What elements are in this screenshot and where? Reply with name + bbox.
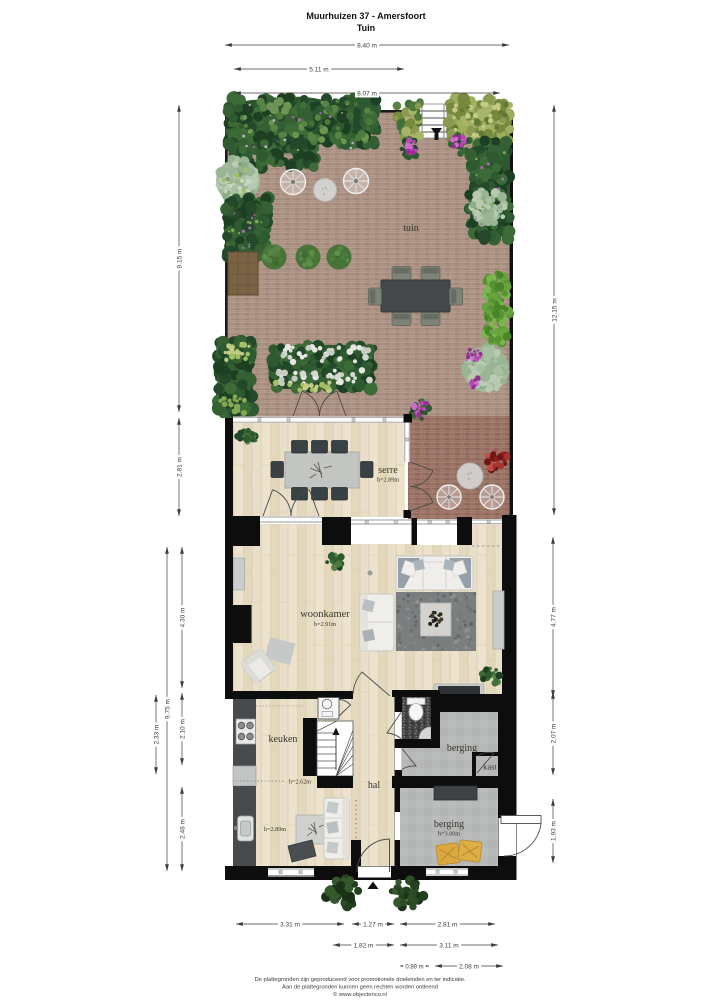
svg-text:9.75 m: 9.75 m xyxy=(165,699,172,719)
svg-text:4.77 m: 4.77 m xyxy=(551,607,558,627)
svg-text:9.15 m: 9.15 m xyxy=(177,249,184,269)
svg-text:8.40 m: 8.40 m xyxy=(357,43,377,50)
svg-text:3.11 m: 3.11 m xyxy=(439,943,458,950)
svg-text:tuin: tuin xyxy=(403,223,419,234)
svg-text:Muurhuizen 37 - Amersfoort: Muurhuizen 37 - Amersfoort xyxy=(306,11,425,21)
svg-text:De plattegronden zijn geproduc: De plattegronden zijn geproduceerd voor … xyxy=(254,977,465,983)
svg-text:12.15 m: 12.15 m xyxy=(552,298,559,322)
svg-text:Aan de plattegronden kunnen ge: Aan de plattegronden kunnen geen rechten… xyxy=(282,985,438,991)
svg-text:2.81 m: 2.81 m xyxy=(177,457,184,477)
svg-text:h=2.89m: h=2.89m xyxy=(377,477,399,484)
svg-text:0.89 m: 0.89 m xyxy=(405,965,423,971)
svg-text:1.93 m: 1.93 m xyxy=(551,821,558,841)
svg-text:keuken: keuken xyxy=(269,734,298,745)
svg-text:2.81 m: 2.81 m xyxy=(438,922,458,929)
svg-text:h=2.91m: h=2.91m xyxy=(314,621,336,628)
svg-text:2.46 m: 2.46 m xyxy=(180,819,187,839)
svg-text:2.07 m: 2.07 m xyxy=(551,724,558,744)
svg-text:2.33 m: 2.33 m xyxy=(154,725,161,745)
svg-text:2.08 m: 2.08 m xyxy=(459,964,479,971)
svg-text:1.27 m: 1.27 m xyxy=(363,922,383,929)
svg-text:h=2.62m: h=2.62m xyxy=(289,779,311,786)
svg-text:8.07 m: 8.07 m xyxy=(357,91,377,98)
svg-text:3.31 m: 3.31 m xyxy=(280,922,300,929)
svg-text:h=2.89m: h=2.89m xyxy=(264,826,286,833)
svg-text:2.10 m: 2.10 m xyxy=(180,719,187,739)
svg-text:kast: kast xyxy=(483,762,497,772)
svg-text:h=3.00m: h=3.00m xyxy=(438,831,460,838)
svg-text:serre: serre xyxy=(378,465,398,476)
svg-text:5.11 m: 5.11 m xyxy=(309,67,328,74)
svg-text:hal: hal xyxy=(368,780,380,791)
svg-text:© www.objectenco.nl: © www.objectenco.nl xyxy=(333,991,387,998)
svg-text:1.82 m: 1.82 m xyxy=(354,943,374,950)
svg-text:berging: berging xyxy=(434,819,464,830)
svg-text:woonkamer: woonkamer xyxy=(300,609,350,620)
svg-text:Tuin: Tuin xyxy=(357,23,375,33)
svg-text:4.30 m: 4.30 m xyxy=(180,608,187,628)
